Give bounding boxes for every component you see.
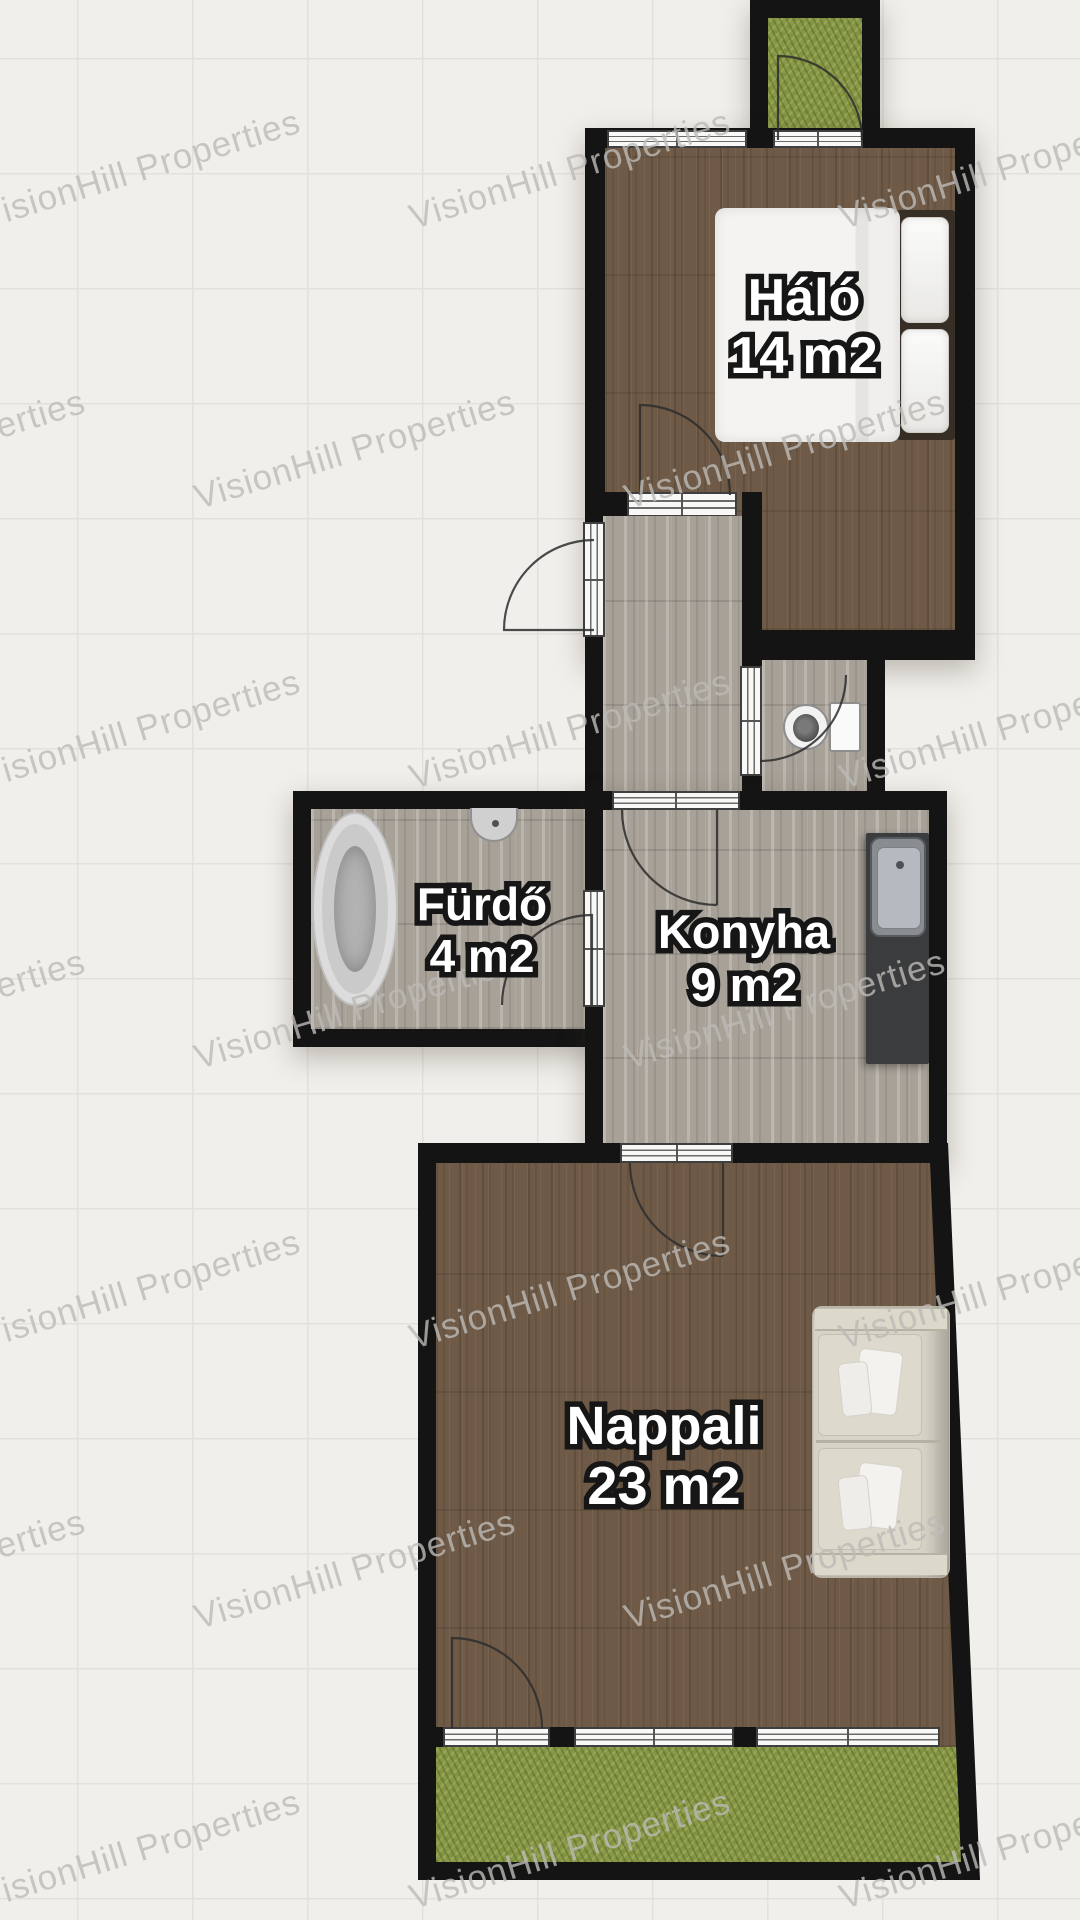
hall-kitchen-transom	[612, 791, 740, 810]
terrace-grass	[436, 1747, 978, 1862]
kitchen-living-transom	[620, 1143, 733, 1163]
wall	[293, 791, 311, 1047]
wc-door-frame	[740, 666, 762, 776]
window	[607, 130, 747, 148]
room-area: 4 m24 m2	[417, 931, 547, 983]
terrace-door-threshold	[443, 1727, 550, 1747]
watermark-text: VisionHill Properties	[0, 1222, 305, 1358]
toilet	[783, 704, 829, 750]
room-name: NappaliNappali	[566, 1396, 761, 1456]
watermark-text: VisionHill Properties	[0, 1782, 305, 1918]
room-area: 23 m223 m2	[566, 1456, 761, 1516]
toilet-bowl-inner	[793, 714, 819, 742]
wall	[867, 630, 885, 810]
entry-door-frame	[583, 522, 605, 637]
room-name: FürdőFürdő	[417, 879, 547, 931]
bathtub-basin	[334, 846, 376, 972]
room-wc	[742, 630, 885, 810]
kitchen-sink	[870, 837, 926, 937]
bed-pillow	[901, 217, 949, 323]
wall	[293, 791, 603, 809]
window	[756, 1727, 940, 1747]
sofa-armrest	[815, 1309, 947, 1331]
room-area: 9 m29 m2	[658, 959, 830, 1012]
label-bedroom: HálóHáló 14 m214 m2	[730, 269, 877, 385]
sofa-pillow	[837, 1475, 872, 1532]
door-arc-entry	[504, 540, 594, 630]
label-bathroom: FürdőFürdő 4 m24 m2	[417, 879, 547, 982]
toilet-tank	[829, 702, 861, 752]
sink-drain	[492, 820, 499, 827]
wall	[929, 791, 947, 1163]
watermark-text: VisionHill Properties	[0, 1502, 90, 1638]
sofa	[812, 1306, 950, 1578]
wall	[585, 128, 605, 518]
wall	[750, 0, 768, 148]
floor-plan: HálóHáló 14 m214 m2 FürdőFürdő 4 m24 m2 …	[0, 0, 1080, 1920]
window	[574, 1727, 734, 1747]
room-name: KonyhaKonyha	[658, 906, 830, 959]
hallway-floor	[603, 516, 742, 810]
label-living: NappaliNappali 23 m223 m2	[566, 1396, 761, 1517]
sofa-seam	[816, 1440, 942, 1443]
bathtub	[312, 812, 398, 1006]
watermark-text: VisionHill Properties	[0, 102, 305, 238]
sink-drain	[896, 861, 904, 869]
balcony-door-threshold	[773, 130, 863, 148]
wall	[862, 0, 880, 148]
wall	[436, 1727, 443, 1747]
bed-pillow	[901, 329, 949, 433]
wall	[734, 1727, 756, 1747]
watermark-text: VisionHill Properties	[0, 662, 305, 798]
room-name: HálóHáló	[730, 269, 877, 327]
watermark-text: VisionHill Properties	[0, 382, 90, 518]
room-area: 14 m214 m2	[730, 327, 877, 385]
bathroom-door-frame	[583, 890, 605, 1007]
watermark-text: VisionHill Properties	[190, 382, 521, 518]
sofa-armrest	[815, 1553, 947, 1575]
room-hallway	[585, 492, 762, 810]
room-balcony	[750, 0, 880, 148]
wall	[293, 1029, 603, 1047]
balcony-grass	[768, 18, 862, 130]
kitchen-sink-basin	[877, 847, 921, 929]
wall	[550, 1727, 574, 1747]
watermark-text: VisionHill Properties	[0, 942, 90, 1078]
label-kitchen: KonyhaKonyha 9 m29 m2	[658, 906, 830, 1011]
sofa-pillow	[837, 1361, 872, 1418]
wall	[750, 0, 880, 18]
